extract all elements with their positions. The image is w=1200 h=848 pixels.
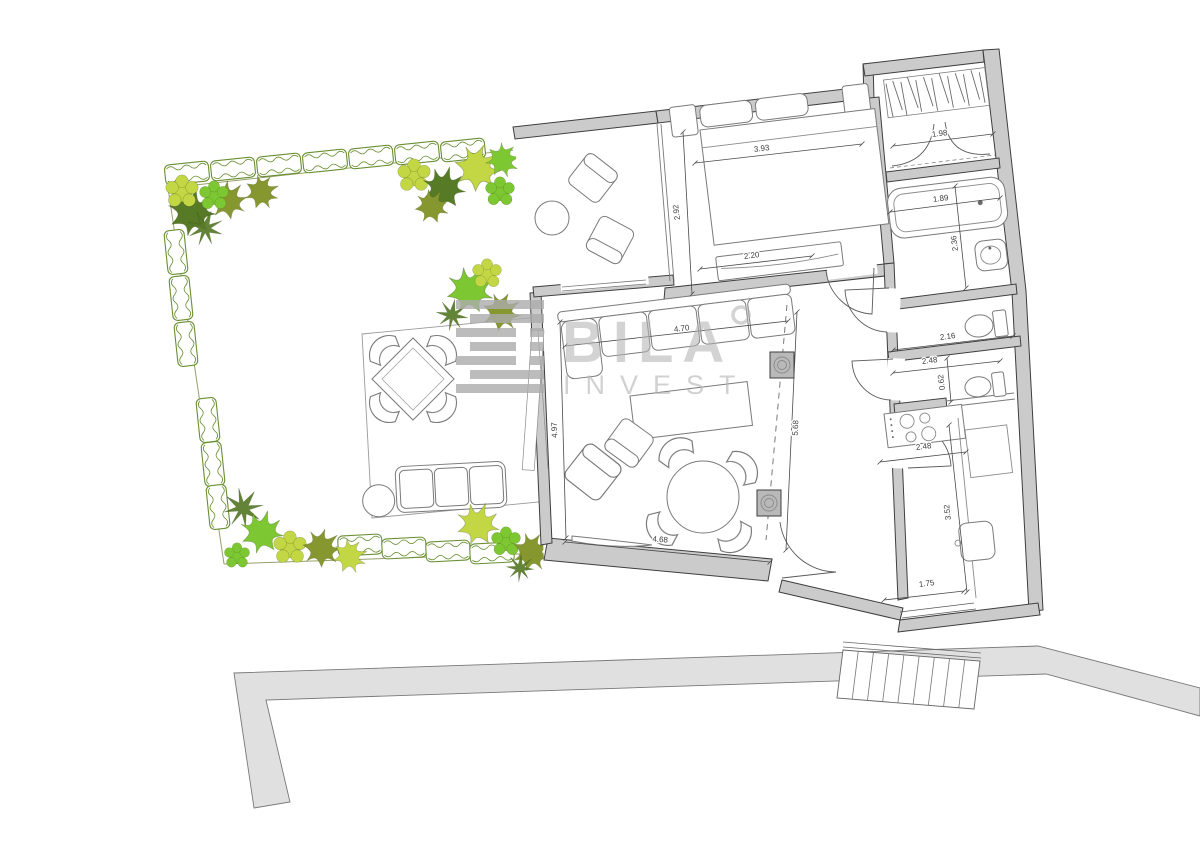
kitchen-sink bbox=[958, 520, 996, 561]
hedge-box bbox=[348, 145, 394, 169]
hedge-box bbox=[426, 540, 471, 562]
nightstand bbox=[669, 104, 698, 137]
bush-plant bbox=[492, 527, 521, 555]
bush-plant bbox=[224, 543, 249, 568]
hedge-box bbox=[382, 537, 427, 559]
walkway bbox=[234, 646, 1200, 808]
floor-plan-page: 3.932.922.201.981.892.362.162.480.622.48… bbox=[0, 0, 1200, 848]
floor-plan-drawing: 3.932.922.201.981.892.362.162.480.622.48… bbox=[0, 0, 1200, 848]
stairs-body bbox=[837, 650, 980, 709]
hedge-box bbox=[169, 275, 193, 321]
door-gap-wc bbox=[886, 358, 905, 401]
hedge-box bbox=[210, 157, 256, 181]
sofa-cushion bbox=[434, 467, 469, 507]
dimension-label: 3.52 bbox=[942, 504, 953, 521]
dining-table bbox=[667, 461, 739, 533]
toilet-tank bbox=[992, 310, 1008, 337]
hedge-box bbox=[302, 149, 348, 173]
terrace-table bbox=[535, 201, 569, 235]
bush-plant bbox=[473, 259, 502, 287]
hedge-box bbox=[256, 153, 302, 177]
watermark-sub: INVEST bbox=[563, 370, 751, 400]
sofa-cushion bbox=[469, 465, 504, 505]
site-path bbox=[234, 642, 1200, 808]
door-gap-toilet bbox=[882, 288, 901, 333]
hedge-box bbox=[164, 229, 188, 275]
dimension-label: 4.68 bbox=[652, 534, 669, 544]
hedge-box bbox=[196, 397, 220, 443]
sofa-cushion bbox=[747, 294, 796, 339]
hedge-box bbox=[201, 441, 225, 487]
bidet-tank bbox=[991, 372, 1006, 397]
column bbox=[770, 352, 794, 378]
sofa-cushion bbox=[399, 469, 434, 509]
washbasin bbox=[974, 238, 1008, 272]
watermark-brand: BILA bbox=[562, 310, 733, 375]
column bbox=[757, 490, 781, 516]
dimension-label: 5.68 bbox=[791, 419, 801, 436]
dimension-label: 4.97 bbox=[550, 422, 560, 438]
bed bbox=[700, 109, 889, 246]
bush-plant bbox=[200, 181, 229, 209]
hedge-box bbox=[174, 321, 198, 367]
hedge-box bbox=[206, 484, 230, 530]
garden-dining-set bbox=[363, 329, 463, 429]
watermark: BILA INVEST bbox=[456, 300, 751, 400]
